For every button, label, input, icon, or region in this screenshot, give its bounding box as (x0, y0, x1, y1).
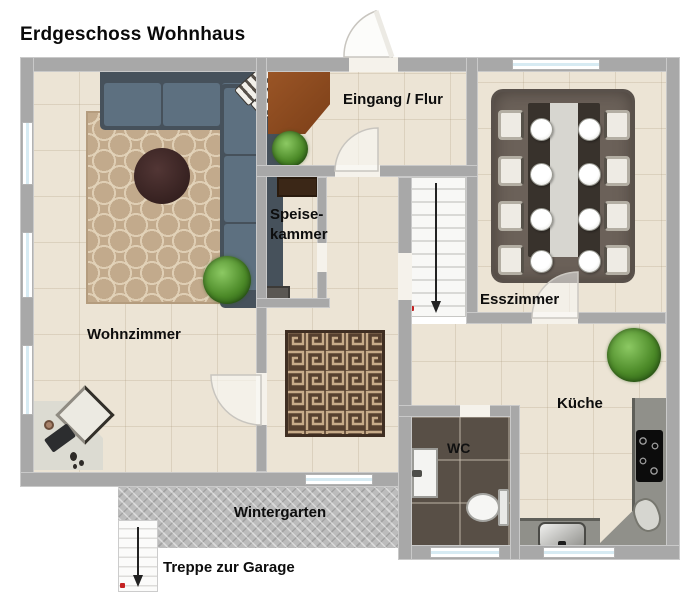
cup (44, 420, 54, 430)
window-left-3 (22, 345, 33, 415)
label-speisekammer-line2: kammer (270, 226, 328, 243)
label-treppe-zur-garage: Treppe zur Garage (163, 559, 295, 576)
potted-plant-kitchen (607, 328, 661, 382)
dining-chair (498, 110, 524, 140)
wall-esszimmer-west (466, 57, 478, 324)
dining-chair (498, 156, 524, 186)
place-setting (530, 118, 553, 141)
label-kueche: Küche (557, 395, 603, 412)
label-speisekammer-line1: Speise- (270, 206, 323, 223)
desk-item (73, 464, 77, 469)
label-esszimmer: Esszimmer (480, 291, 559, 308)
dining-chair (604, 245, 630, 275)
front-door-arc (344, 11, 392, 57)
dining-chair (604, 110, 630, 140)
desk-item (79, 460, 84, 466)
wall-wc-east (510, 405, 520, 560)
wall-wc-north (398, 405, 520, 417)
window-wc (430, 547, 500, 558)
window-esszimmer (512, 59, 600, 70)
floor-plan: Erdgeschoss Wohnhaus (0, 0, 699, 600)
place-setting (578, 208, 601, 231)
wall-right (666, 57, 680, 560)
flur-door-opening (335, 165, 380, 177)
wc-faucet (412, 470, 422, 477)
esszimmer-door-opening (532, 312, 578, 324)
toilet (466, 493, 500, 522)
place-setting (530, 250, 553, 273)
dining-chair (604, 201, 630, 231)
dining-chair (498, 201, 524, 231)
label-wohnzimmer: Wohnzimmer (87, 326, 181, 343)
place-setting (578, 163, 601, 186)
round-side-table (134, 148, 190, 204)
window-left-2 (22, 232, 33, 298)
place-setting (530, 163, 553, 186)
dining-chair (498, 245, 524, 275)
stairs-door-opening (398, 253, 412, 300)
main-staircase (407, 177, 466, 317)
wc-door-opening (460, 405, 490, 417)
window-left-1 (22, 122, 33, 185)
dining-table-runner (550, 103, 578, 257)
plan-title: Erdgeschoss Wohnhaus (20, 24, 245, 46)
desk-item (70, 452, 77, 461)
window-corridor (305, 474, 373, 485)
potted-plant-entry (272, 131, 308, 167)
cooktop (636, 430, 663, 482)
label-wintergarten: Wintergarten (200, 504, 360, 521)
dining-chair (604, 156, 630, 186)
stair-entry-marker (120, 583, 125, 588)
window-kueche (543, 547, 615, 558)
wall-corridor-east (398, 177, 412, 560)
place-setting (530, 208, 553, 231)
toilet-tank (498, 489, 509, 526)
wall-pantry-south (256, 298, 330, 308)
potted-plant-living (203, 256, 251, 304)
place-setting (578, 118, 601, 141)
label-wc: WC (447, 440, 470, 456)
front-door-leaf (376, 11, 392, 57)
livingroom-door-opening (256, 373, 267, 425)
front-door-opening (349, 57, 398, 72)
garage-staircase (118, 520, 158, 592)
label-eingang-flur: Eingang / Flur (343, 91, 443, 108)
pantry-cabinet (277, 177, 318, 197)
pantry-door-opening (317, 243, 327, 272)
place-setting (578, 250, 601, 273)
